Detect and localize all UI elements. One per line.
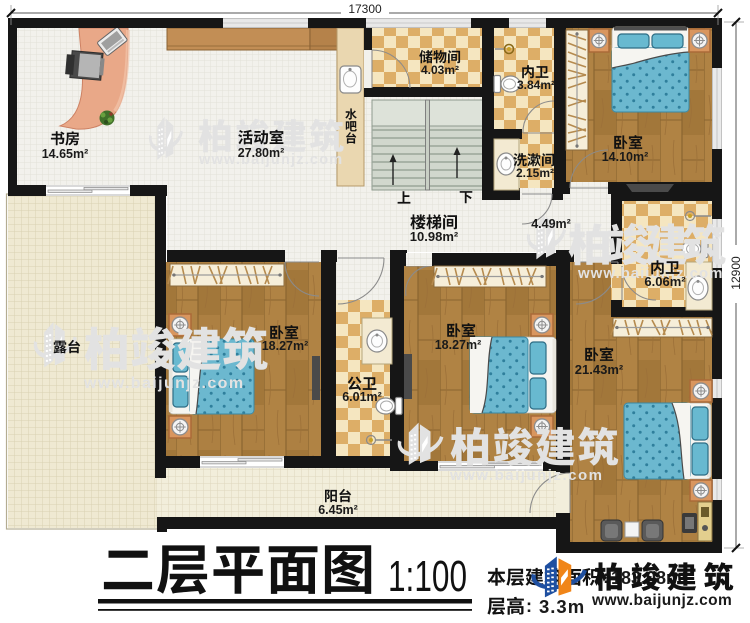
svg-text:www.baijunjz.com: www.baijunjz.com [591, 592, 732, 609]
svg-text:4.49m²: 4.49m² [531, 217, 571, 231]
svg-text:4.03m²: 4.03m² [421, 63, 459, 77]
svg-text:3.84m²: 3.84m² [517, 78, 555, 92]
svg-text:10.98m²: 10.98m² [410, 229, 459, 244]
svg-text:www.baijunjz.com: www.baijunjz.com [83, 375, 245, 392]
svg-text:18.27m²: 18.27m² [435, 338, 482, 352]
svg-text:2.15m²: 2.15m² [516, 166, 554, 180]
svg-text:1:100: 1:100 [388, 552, 467, 601]
svg-text::: : [526, 596, 532, 616]
svg-text:18.27m²: 18.27m² [262, 339, 309, 353]
svg-text:27.80m²: 27.80m² [238, 146, 285, 160]
svg-text:6.06m²: 6.06m² [644, 274, 686, 289]
svg-text:21.43m²: 21.43m² [575, 362, 624, 377]
svg-text:14.65m²: 14.65m² [42, 147, 89, 161]
svg-text:12900: 12900 [729, 256, 743, 290]
svg-text:6.45m²: 6.45m² [318, 503, 358, 517]
svg-text:3.3m: 3.3m [539, 596, 585, 617]
svg-text:6.01m²: 6.01m² [342, 390, 382, 404]
svg-text:17300: 17300 [348, 2, 382, 16]
svg-text:www.baijunjz.com: www.baijunjz.com [449, 467, 603, 484]
svg-text:14.10m²: 14.10m² [602, 150, 649, 164]
